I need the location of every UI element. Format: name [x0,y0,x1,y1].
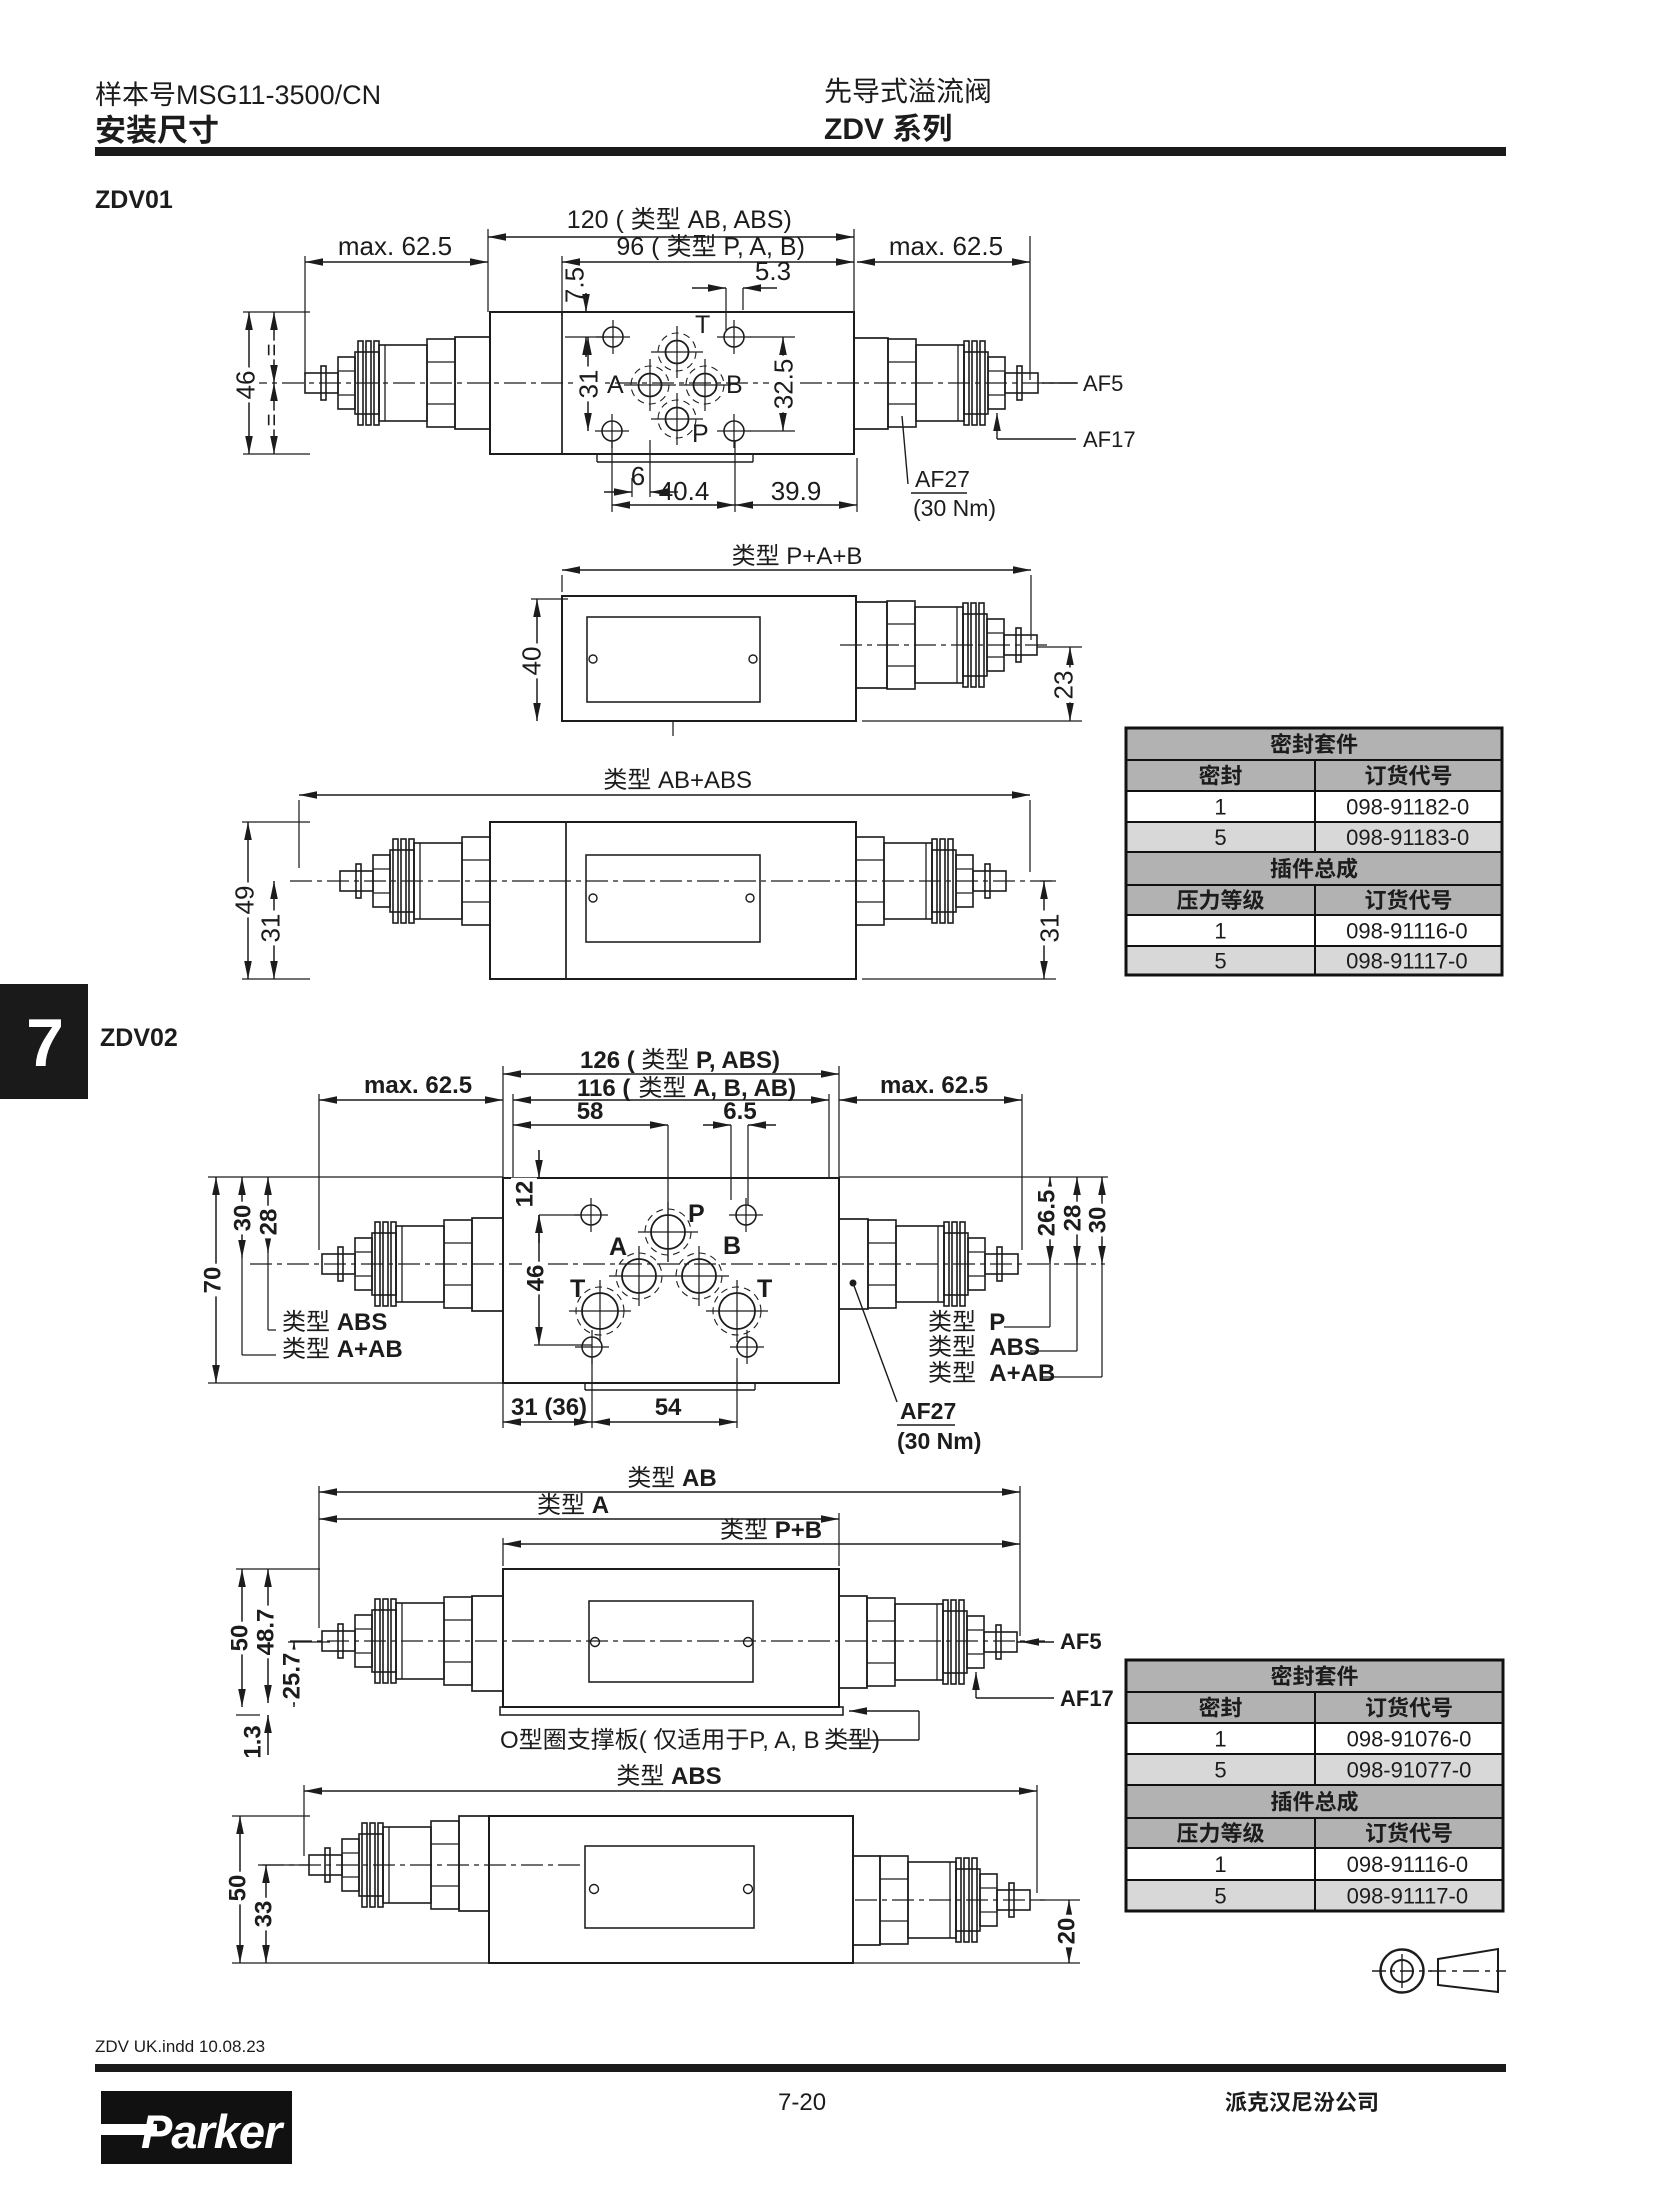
svg-text:T: T [695,311,710,339]
svg-text:1: 1 [1214,1852,1226,1877]
svg-text:P+A+B: P+A+B [786,543,862,570]
svg-text:70: 70 [200,1267,227,1294]
svg-text:098-91077-0: 098-91077-0 [1347,1758,1472,1783]
svg-text:26.5: 26.5 [1034,1190,1061,1237]
svg-text:098-91116-0: 098-91116-0 [1346,919,1468,944]
svg-text:A: A [592,1492,609,1519]
svg-text:5.3: 5.3 [755,256,791,286]
svg-text:5: 5 [1214,1884,1226,1909]
svg-text:AF27: AF27 [915,466,970,492]
svg-text:P+B: P+B [775,1517,822,1544]
svg-text:ZDV UK.indd 10.08.23: ZDV UK.indd 10.08.23 [95,2037,265,2056]
svg-text:12: 12 [512,1181,539,1208]
svg-text:AF5: AF5 [1083,371,1123,396]
svg-text:max. 62.5: max. 62.5 [880,1072,988,1099]
svg-text:ZDV: ZDV [824,113,884,146]
svg-text:40.4: 40.4 [659,476,710,506]
svg-text:50: 50 [225,1875,252,1902]
svg-text:28: 28 [1060,1205,1087,1232]
svg-text:39.9: 39.9 [771,476,822,506]
svg-text:28: 28 [256,1209,283,1236]
svg-text:48.7: 48.7 [253,1609,280,1656]
svg-text:AF5: AF5 [1060,1629,1102,1654]
svg-text:AB: AB [682,1465,717,1492]
svg-text:7.5: 7.5 [559,267,589,303]
svg-text:P, A, B: P, A, B [749,1727,819,1754]
svg-text:30: 30 [1085,1207,1112,1234]
svg-text:098-91182-0: 098-91182-0 [1346,795,1469,820]
svg-text:7: 7 [26,1005,64,1081]
svg-text:1: 1 [1214,919,1226,944]
svg-text:31: 31 [573,370,603,399]
svg-text:T: T [570,1275,585,1303]
svg-text:098-91116-0: 098-91116-0 [1347,1852,1469,1877]
svg-text:40: 40 [516,647,546,676]
svg-text:96 (: 96 ( [616,233,660,261]
svg-text:ZDV01: ZDV01 [95,186,173,214]
svg-text:30: 30 [230,1205,257,1232]
svg-text:50: 50 [227,1625,254,1652]
svg-text:25.7: 25.7 [279,1653,306,1700]
svg-text:5: 5 [1214,825,1226,850]
svg-text:32.5: 32.5 [768,359,798,410]
svg-text:6.5: 6.5 [723,1098,756,1125]
svg-text:A: A [607,371,624,399]
svg-text:=: = [259,344,284,357]
svg-text:P, ABS): P, ABS) [696,1047,780,1074]
svg-text:1.3: 1.3 [240,1725,267,1758]
svg-text:23: 23 [1048,671,1078,700]
svg-text:098-91183-0: 098-91183-0 [1346,825,1469,850]
svg-text:P: P [688,1200,705,1228]
svg-text:ZDV02: ZDV02 [100,1024,178,1052]
svg-text:O: O [500,1727,519,1754]
svg-text:max. 62.5: max. 62.5 [889,231,1003,261]
svg-text:ABS: ABS [671,1763,722,1790]
svg-text:=: = [259,414,284,427]
svg-text:20: 20 [1054,1918,1081,1945]
svg-text:7-20: 7-20 [778,2089,826,2116]
svg-text:5: 5 [1214,1758,1226,1783]
svg-text:Parker: Parker [141,2105,285,2158]
svg-text:P: P [692,420,709,448]
svg-text:1: 1 [1214,795,1226,820]
svg-text:B: B [723,1232,741,1260]
svg-text:B: B [726,371,743,399]
svg-text:AB+ABS: AB+ABS [658,767,752,794]
svg-text:A+AB: A+AB [989,1360,1055,1387]
svg-text:AF17: AF17 [1060,1686,1114,1711]
svg-text:31: 31 [1034,914,1064,943]
svg-text:AF27: AF27 [900,1398,956,1424]
svg-text:098-91117-0: 098-91117-0 [1347,1884,1469,1909]
svg-text:120 (: 120 ( [567,206,625,234]
svg-text:A+AB: A+AB [337,1336,403,1363]
svg-text:6: 6 [631,461,645,491]
svg-text:AB, ABS): AB, ABS) [688,206,792,234]
svg-text:(30 Nm): (30 Nm) [913,495,996,521]
svg-text:T: T [757,1275,772,1303]
svg-text:58: 58 [577,1098,604,1125]
svg-text:54: 54 [655,1394,682,1421]
svg-text:max. 62.5: max. 62.5 [338,231,452,261]
svg-text:31: 31 [255,914,285,943]
svg-text:MSG11-3500/CN: MSG11-3500/CN [176,80,381,110]
svg-text:AF17: AF17 [1083,427,1136,452]
svg-text:ABS: ABS [989,1334,1040,1361]
svg-text:46: 46 [230,371,260,400]
svg-text:49: 49 [229,886,259,915]
svg-text:A: A [609,1233,627,1261]
svg-text:31 (36): 31 (36) [511,1394,587,1421]
svg-text:(30 Nm): (30 Nm) [897,1428,981,1454]
svg-text:1: 1 [1214,1727,1226,1752]
svg-text:126 (: 126 ( [580,1047,635,1074]
svg-text:46: 46 [523,1265,550,1292]
svg-text:max. 62.5: max. 62.5 [364,1072,472,1099]
svg-text:098-91117-0: 098-91117-0 [1346,949,1468,974]
svg-text:098-91076-0: 098-91076-0 [1347,1727,1472,1752]
svg-text:33: 33 [251,1901,278,1928]
svg-text:ABS: ABS [337,1309,388,1336]
svg-text:5: 5 [1214,949,1226,974]
svg-text:P: P [989,1309,1005,1336]
svg-text:(: ( [639,1727,647,1754]
